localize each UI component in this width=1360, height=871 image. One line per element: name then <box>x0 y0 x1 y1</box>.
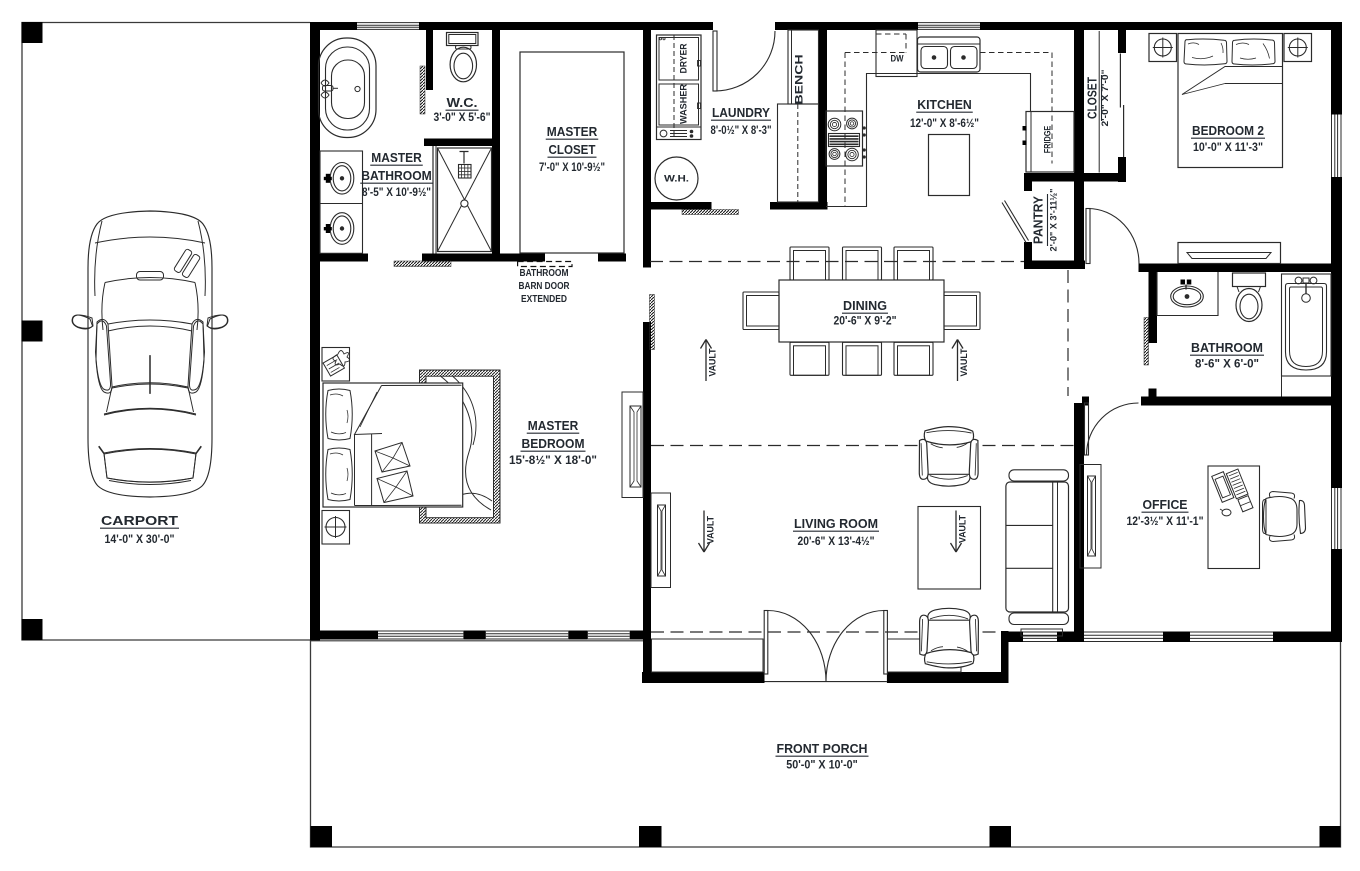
svg-text:LAUNDRY: LAUNDRY <box>712 105 770 120</box>
svg-text:PANTRY: PANTRY <box>1032 195 1046 244</box>
svg-text:8'-0½" X 8'-3": 8'-0½" X 8'-3" <box>711 125 772 137</box>
svg-text:W.H.: W.H. <box>664 174 689 185</box>
svg-text:BENCH: BENCH <box>794 55 806 105</box>
svg-text:OFFICE: OFFICE <box>1143 497 1188 512</box>
svg-text:BATHROOM: BATHROOM <box>1191 340 1263 355</box>
svg-text:15'-8½" X 18'-0": 15'-8½" X 18'-0" <box>509 455 597 467</box>
svg-text:BATHROOM: BATHROOM <box>520 268 569 279</box>
svg-text:14'-0" X 30'-0": 14'-0" X 30'-0" <box>105 534 175 546</box>
svg-text:DRYER: DRYER <box>679 43 690 73</box>
svg-text:3'-0" X 5'-6": 3'-0" X 5'-6" <box>434 112 491 124</box>
svg-text:7'-0" X 10'-9½": 7'-0" X 10'-9½" <box>539 162 605 174</box>
svg-text:DINING: DINING <box>843 298 887 313</box>
svg-text:DW: DW <box>891 54 904 65</box>
svg-text:12'-3½" X 11'-1": 12'-3½" X 11'-1" <box>1127 516 1204 528</box>
svg-text:W.C.: W.C. <box>447 95 478 110</box>
svg-text:BEDROOM: BEDROOM <box>522 436 585 451</box>
svg-text:2'-0" X 7'-0": 2'-0" X 7'-0" <box>1100 70 1110 127</box>
svg-text:CLOSET: CLOSET <box>549 142 596 157</box>
svg-text:20'-6" X 9'-2": 20'-6" X 9'-2" <box>834 316 897 328</box>
svg-text:BEDROOM 2: BEDROOM 2 <box>1192 123 1264 138</box>
svg-text:FRIDGE: FRIDGE <box>1043 126 1053 154</box>
svg-text:VAULT: VAULT <box>708 348 718 376</box>
svg-text:10'-0" X 11'-3": 10'-0" X 11'-3" <box>1193 142 1263 154</box>
svg-text:2'-0" X 3'-11½": 2'-0" X 3'-11½" <box>1049 189 1059 252</box>
svg-text:8'-6" X 6'-0": 8'-6" X 6'-0" <box>1195 359 1259 371</box>
svg-text:VAULT: VAULT <box>959 348 969 376</box>
svg-text:MASTER: MASTER <box>547 124 598 139</box>
svg-text:EXTENDED: EXTENDED <box>521 294 567 305</box>
svg-text:MASTER: MASTER <box>528 418 579 433</box>
svg-text:BARN DOOR: BARN DOOR <box>519 281 570 292</box>
svg-text:50'-0" X 10'-0": 50'-0" X 10'-0" <box>786 760 858 772</box>
svg-text:VAULT: VAULT <box>958 515 968 543</box>
svg-text:12'-0" X 8'-6½": 12'-0" X 8'-6½" <box>910 118 979 130</box>
svg-text:KITCHEN: KITCHEN <box>917 97 972 112</box>
svg-text:CARPORT: CARPORT <box>101 513 178 528</box>
svg-text:8'-5" X 10'-9½": 8'-5" X 10'-9½" <box>362 187 431 199</box>
svg-text:FRONT PORCH: FRONT PORCH <box>777 741 868 756</box>
svg-text:BATHROOM: BATHROOM <box>361 168 432 183</box>
svg-text:VAULT: VAULT <box>706 516 716 544</box>
svg-text:MASTER: MASTER <box>371 150 422 165</box>
svg-text:20'-6" X 13'-4½": 20'-6" X 13'-4½" <box>798 536 875 548</box>
svg-text:CLOSET: CLOSET <box>1086 77 1100 119</box>
svg-text:WASHER: WASHER <box>679 84 690 124</box>
svg-text:LIVING ROOM: LIVING ROOM <box>794 516 878 531</box>
